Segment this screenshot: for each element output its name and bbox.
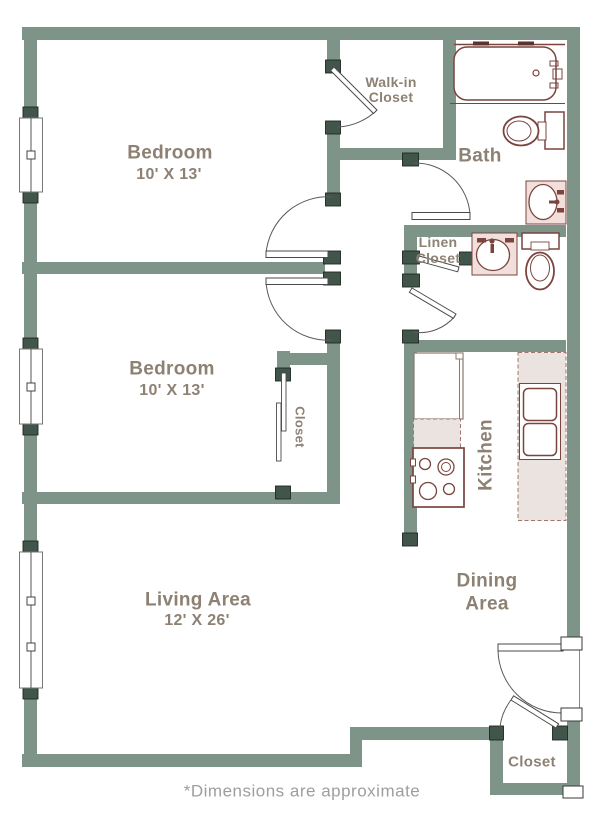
- wall-closet-br-left: [490, 739, 503, 783]
- wall-between-bedrooms: [22, 262, 325, 274]
- footnote: *Dimensions are approximate: [184, 783, 421, 800]
- label-living-dims: 12' X 26': [164, 613, 229, 629]
- window-bedroom2: [20, 349, 43, 424]
- floor-plan: Bedroom 10' X 13' Walk-in Closet Bath Li…: [0, 0, 606, 821]
- wall-hall-col-c: [327, 343, 340, 492]
- label-dining-line1: Dining: [457, 572, 518, 591]
- toilet-powder-room: [522, 233, 559, 290]
- label-bedroom2-dims: 10' X 13': [139, 383, 204, 399]
- door-bedroom1: [266, 197, 333, 258]
- window-bedroom1: [20, 118, 43, 192]
- toilet-main-bath: [504, 112, 565, 149]
- label-linen-closet-line1: Linen: [419, 235, 458, 249]
- label-bedroom2-name: Bedroom: [129, 360, 215, 379]
- label-linen-closet-line2: Closet: [416, 251, 461, 265]
- label-living-name: Living Area: [145, 591, 251, 610]
- label-bedroom1-name: Bedroom: [127, 144, 213, 163]
- window-living: [20, 552, 43, 688]
- label-bath: Bath: [458, 147, 501, 166]
- wall-right-upper: [567, 27, 580, 640]
- wall-kitchen-top: [404, 340, 566, 352]
- bathtub: [450, 42, 565, 104]
- door-bedroom2: [266, 278, 333, 340]
- wall-bottom-step-h: [362, 727, 492, 740]
- wall-bedroom2-bottom: [22, 492, 340, 504]
- wall-bottom-step-v: [350, 727, 362, 767]
- sink-powder-room: [472, 233, 517, 275]
- sink-main-bath: [526, 181, 566, 224]
- wall-hall-col-a: [327, 40, 340, 62]
- wall-left-seg1: [24, 27, 37, 118]
- kitchen-counter-left: [414, 419, 461, 448]
- label-walkin-closet-line1: Walk-in: [365, 75, 416, 89]
- wall-left-seg3: [24, 424, 37, 552]
- label-bedroom1-dims: 10' X 13': [136, 167, 201, 183]
- label-entry-closet: Closet: [508, 755, 556, 770]
- door-bath: [412, 163, 470, 220]
- label-dining-line2: Area: [465, 595, 508, 614]
- kitchen-sink: [520, 384, 561, 460]
- wall-hall-col-b: [327, 133, 340, 195]
- door-powder-room: [409, 288, 456, 333]
- refrigerator: [414, 353, 463, 419]
- label-bedroom2-closet: Closet: [294, 406, 307, 448]
- label-walkin-closet-line2: Closet: [369, 90, 414, 104]
- door-entry: [498, 644, 580, 713]
- stove: [411, 448, 465, 507]
- label-kitchen: Kitchen: [477, 419, 496, 491]
- wall-walkin-bottom: [330, 148, 456, 160]
- sliding-closet-door: [277, 373, 287, 461]
- wall-top: [22, 27, 580, 40]
- wall-bottom-main: [22, 754, 362, 767]
